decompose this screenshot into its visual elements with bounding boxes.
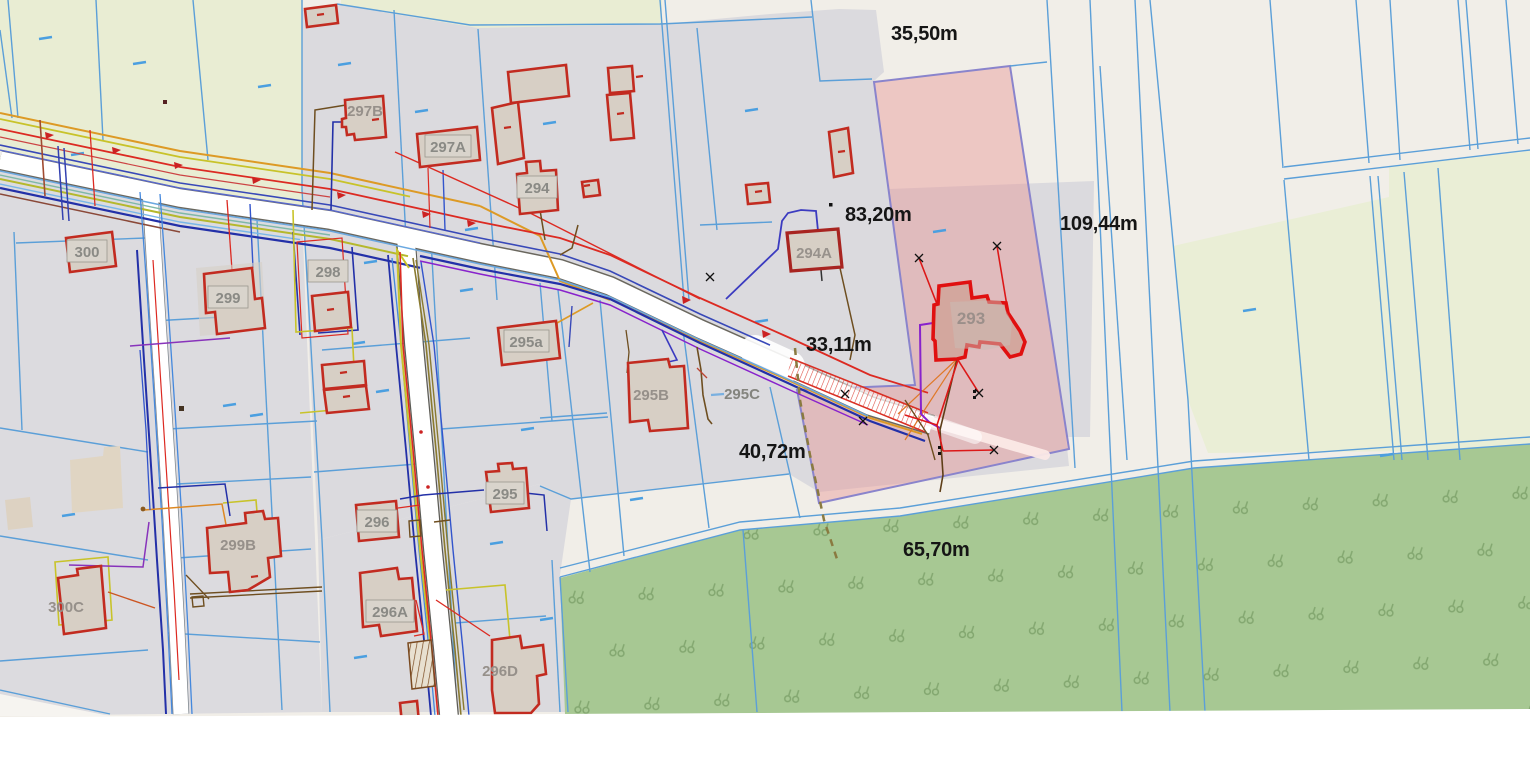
svg-text:33,11m: 33,11m	[806, 334, 872, 356]
svg-text:300C: 300C	[48, 599, 84, 616]
svg-text:297B: 297B	[347, 103, 383, 120]
svg-text:298: 298	[315, 264, 340, 281]
svg-text:35,50m: 35,50m	[891, 23, 958, 45]
svg-text:40,72m: 40,72m	[739, 441, 806, 463]
svg-text:294: 294	[524, 180, 550, 197]
svg-text:296D: 296D	[482, 663, 518, 680]
svg-text:295: 295	[492, 486, 517, 503]
svg-text:83,20m: 83,20m	[845, 204, 912, 226]
svg-text:295a: 295a	[509, 334, 543, 351]
svg-text:293: 293	[957, 309, 985, 328]
svg-text:297A: 297A	[430, 139, 466, 156]
svg-text:299B: 299B	[220, 537, 256, 554]
svg-text:300: 300	[74, 244, 99, 261]
svg-text:109,44m: 109,44m	[1060, 213, 1138, 235]
svg-text:295B: 295B	[633, 387, 669, 404]
svg-text:299: 299	[215, 290, 240, 307]
svg-text:294A: 294A	[796, 245, 832, 262]
svg-text:296: 296	[364, 514, 389, 531]
svg-text:65,70m: 65,70m	[903, 539, 970, 561]
svg-text:296A: 296A	[372, 604, 408, 621]
svg-text:295C: 295C	[724, 386, 760, 403]
